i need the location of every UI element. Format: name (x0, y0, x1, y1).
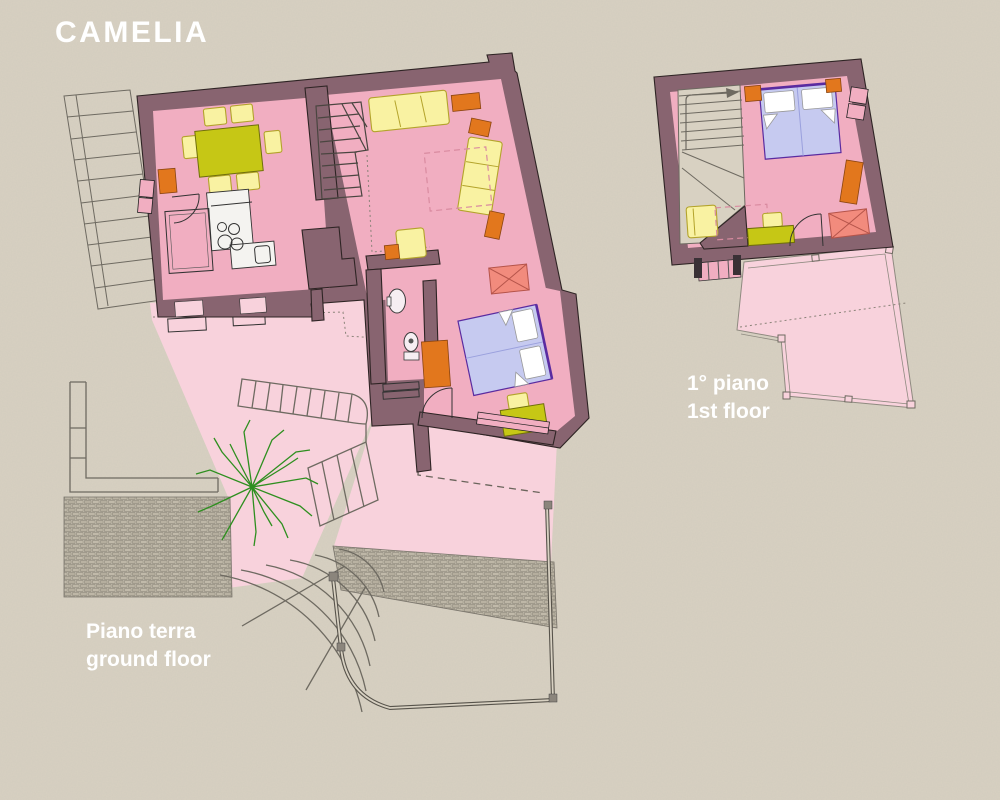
ground-floor-label-it: Piano terra (86, 618, 211, 646)
window (138, 179, 155, 213)
radiator (451, 93, 481, 112)
wardrobe (421, 340, 450, 388)
double-bed (759, 83, 841, 159)
door-opening (240, 297, 267, 314)
radiator (826, 78, 842, 92)
page-title: CAMELIA (55, 16, 209, 50)
double-bed (458, 305, 552, 396)
first-floor-label-en: 1st floor (687, 398, 770, 426)
floor-plan-drawing (0, 0, 1000, 800)
dining-table (195, 125, 263, 177)
armchair (396, 228, 427, 260)
fireplace (829, 209, 870, 238)
armchair (686, 205, 718, 238)
fireplace (489, 264, 530, 294)
first-floor-label-it: 1° piano (687, 370, 770, 398)
paved-area (64, 497, 232, 597)
ground-floor-label: Piano terra ground floor (86, 618, 211, 674)
radiator (384, 244, 399, 259)
floor-plan-sheet: CAMELIA Piano terra ground floor 1° pian… (0, 0, 1000, 800)
first-floor-label: 1° piano 1st floor (687, 370, 770, 426)
ground-floor-label-en: ground floor (86, 646, 211, 674)
door-opening (175, 300, 204, 317)
radiator (158, 168, 177, 193)
toilet-icon (404, 333, 419, 361)
radiator (744, 85, 761, 101)
